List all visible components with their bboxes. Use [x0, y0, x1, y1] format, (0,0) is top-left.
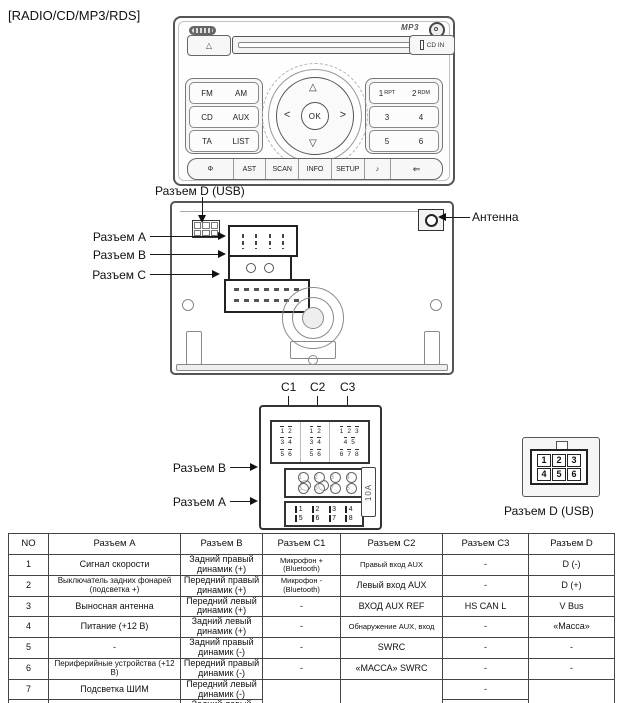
table-cell: -: [263, 638, 341, 659]
connector-d-pins: 123456: [530, 449, 588, 485]
table-row: 3Выносная антеннаПередний левый динамик …: [9, 596, 615, 617]
face-button: 6: [404, 137, 438, 146]
motor-circle: [302, 307, 324, 329]
table-cell: Микрофон + (Bluetooth): [263, 555, 341, 576]
arrowhead: [438, 213, 446, 221]
pin-number: 6: [567, 468, 581, 481]
brand-logo-icon: [189, 26, 216, 35]
face-bottom-button: INFO: [299, 159, 332, 179]
pin-slot-icon: [329, 506, 331, 513]
pin-number-row: 5678: [286, 485, 362, 492]
pin-number-row: 456: [537, 468, 581, 481]
table-cell: Правый вход AUX: [341, 555, 443, 576]
pin-slot-icon: [312, 515, 314, 522]
pin-number: 4: [346, 474, 350, 481]
arrowhead: [250, 463, 258, 471]
pin-slot-icon: [314, 472, 325, 483]
table-cell: Сигнал скорости: [49, 555, 181, 576]
pinout-block-drawing: 123456 123456 12345678 12345678 12345678…: [259, 405, 382, 530]
arrowhead: [218, 232, 226, 240]
table-cell: Задний правый динамик (+): [181, 555, 263, 576]
table-cell: -: [263, 617, 341, 638]
table-cell: HS CAN L: [443, 596, 529, 617]
table-cell: Подсветка ШИМ: [49, 679, 181, 700]
c1-pin-group: 123456: [272, 422, 300, 462]
face-button-suffix: RPT: [384, 90, 395, 96]
pin-number: 8: [346, 485, 350, 492]
arrowhead: [218, 250, 226, 258]
label-connector-c: Разъем C: [88, 268, 146, 282]
pin-slot-icon: [345, 515, 347, 522]
pin-number: 5: [295, 515, 302, 522]
pin-number: 2: [314, 474, 318, 481]
pin-slot-icon: [298, 472, 309, 483]
pin-number: 7: [330, 485, 334, 492]
pin-number: 5: [310, 449, 314, 458]
table-cell: -: [529, 638, 615, 659]
face-button: 1RPT: [370, 89, 404, 98]
table-cell: Передний левый динамик (-): [181, 679, 263, 700]
pin-slot-icon: [346, 483, 357, 494]
base-strip: [176, 364, 448, 371]
pin-number: 2: [347, 426, 351, 435]
leader-line: [446, 217, 470, 218]
c2-pin-group: 123456: [300, 422, 329, 462]
pin-number: 1: [295, 506, 302, 513]
table-row: 2Выключатель задних фонарей (подсветка +…: [9, 575, 615, 596]
face-button-row: 56: [369, 130, 439, 152]
pin-number: 8: [355, 449, 359, 458]
pin-number-row: 12: [280, 426, 291, 435]
pin-number: 2: [317, 426, 321, 435]
page-title: [RADIO/CD/MP3/RDS]: [8, 8, 140, 23]
table-row: 7Подсветка ШИМПередний левый динамик (-)…: [9, 679, 615, 700]
pin-number: 3: [355, 426, 359, 435]
pin-number: 5: [280, 449, 284, 458]
connector-b-drawing: [228, 255, 292, 281]
table-row: 5-Задний правый динамик (-)-SWRC--: [9, 638, 615, 659]
arrowhead: [212, 270, 220, 278]
table-cell: Передний левый динамик (+): [181, 596, 263, 617]
pin-number: 2: [288, 426, 292, 435]
table-cell: «МАССА» SWRC: [341, 658, 443, 679]
arrowhead: [198, 215, 206, 223]
pin-number: 1: [280, 426, 284, 435]
pin-number-row: 45: [344, 437, 355, 446]
pin-number: 5: [351, 437, 355, 446]
pin-number: 4: [344, 437, 348, 446]
leader-line: [150, 274, 216, 275]
column-header: Разъем D: [529, 534, 615, 555]
arrowhead: [250, 497, 258, 505]
label-connector-d-usb: Разъем D (USB): [155, 184, 245, 198]
pin-number: 3: [329, 506, 336, 513]
table-cell: 4: [9, 617, 49, 638]
face-bottom-button: ♪: [365, 159, 391, 179]
pin-number: 6: [340, 449, 344, 458]
face-button: LIST: [224, 137, 258, 146]
mp3-logo: MP3: [401, 23, 419, 32]
face-bottom-button: ⇐: [391, 159, 442, 179]
pin-number-row: 678: [340, 449, 359, 458]
pin-number: 6: [288, 449, 292, 458]
pin-table-header: NOРазъем AРазъем BРазъем C1Разъем C2Разъ…: [9, 534, 615, 555]
table-cell: D (+): [529, 575, 615, 596]
leader-line: [202, 197, 203, 217]
cd-in-label: CD IN: [427, 42, 445, 49]
face-button-row: TALIST: [189, 130, 259, 152]
table-cell: Передний правый динамик (-): [181, 658, 263, 679]
column-header: Разъем B: [181, 534, 263, 555]
pin-number: 1: [298, 474, 302, 481]
pin-number: 4: [317, 437, 321, 446]
face-button: 4: [404, 113, 438, 122]
table-cell: Микрофон - (Bluetooth): [263, 575, 341, 596]
column-header: Разъем C3: [443, 534, 529, 555]
dpad-up-icon: △: [309, 83, 317, 93]
face-button-row: 1RPT2RDM: [369, 82, 439, 104]
table-cell: Передний правый динамик (+): [181, 575, 263, 596]
pin-number-row: 34: [310, 437, 321, 446]
pin-number: 4: [345, 506, 352, 513]
pin-number: 3: [310, 437, 314, 446]
pin-number: 1: [310, 426, 314, 435]
pin-number: 5: [552, 468, 566, 481]
pin-number: 1: [537, 454, 551, 467]
pin-number: 1: [340, 426, 344, 435]
table-row: 4Питание (+12 В)Задний левый динамик (+)…: [9, 617, 615, 638]
pin-number: 8: [345, 515, 352, 522]
column-header: Разъем C1: [263, 534, 341, 555]
table-cell: 7: [9, 679, 49, 700]
table-cell: V Bus: [529, 596, 615, 617]
connector-c-pinout: 123456 123456 12345678: [270, 420, 370, 464]
table-cell: Питание (+12 В): [49, 617, 181, 638]
leader-line: [150, 236, 222, 237]
column-header: Разъем A: [49, 534, 181, 555]
column-header: Разъем C2: [341, 534, 443, 555]
leader-line: [230, 467, 252, 468]
dpad-right-icon: >: [340, 110, 346, 121]
table-header-row: NOРазъем AРазъем BРазъем C1Разъем C2Разъ…: [9, 534, 615, 555]
label-pinout-b: Разъем B: [166, 461, 226, 475]
cd-in-button: CD IN: [409, 35, 455, 55]
face-button-row: FMAM: [189, 82, 259, 104]
table-cell: -: [443, 638, 529, 659]
pin-number: 4: [288, 437, 292, 446]
face-button: TA: [190, 137, 224, 146]
c3-pin-group: 12345678: [329, 422, 368, 462]
connector-a-pinout: 12345678: [284, 501, 364, 527]
table-cell: -: [443, 658, 529, 679]
pin-slot-icon: [295, 515, 297, 522]
pin-slot-icon: [329, 515, 331, 522]
eject-button: △: [187, 35, 231, 56]
pin-slot-icon: [312, 506, 314, 513]
pin-number-row: 56: [310, 449, 321, 458]
connector-d-usb-drawing: 123456: [522, 437, 600, 497]
face-button: AUX: [224, 113, 258, 122]
table-cell: Задний левый динамик (+): [181, 617, 263, 638]
face-button: 2RDM: [404, 89, 438, 98]
table-cell: -: [49, 638, 181, 659]
pin-number-row: 1234: [286, 506, 362, 513]
pin-slot-icon: [330, 472, 341, 483]
pin-number-row: 1234: [286, 474, 362, 481]
table-cell: «Масса»: [529, 617, 615, 638]
table-cell: Обнаружение AUX, вход: [341, 617, 443, 638]
pin-number-row: 34: [280, 437, 291, 446]
table-cell: -: [529, 658, 615, 679]
dpad-left-icon: <: [284, 110, 290, 121]
screw-icon: [430, 299, 442, 311]
column-header: NO: [9, 534, 49, 555]
dpad-down-icon: ▽: [309, 139, 317, 149]
table-cell: 1: [9, 555, 49, 576]
table-cell: Периферийные устройства (+12 В): [49, 658, 181, 679]
table-cell: [341, 679, 443, 703]
pin-slot-icon: [330, 483, 341, 494]
mount-bracket: [186, 331, 202, 365]
table-cell: SWRC: [341, 638, 443, 659]
face-button: 5: [370, 137, 404, 146]
pin-slot-icon: [295, 506, 297, 513]
pin-table-body: 1Сигнал скоростиЗадний правый динамик (+…: [9, 555, 615, 703]
pin-number: 6: [317, 449, 321, 458]
face-bottom-button: SETUP: [332, 159, 365, 179]
label-antenna: Антенна: [472, 210, 519, 224]
pin-slot-icon: [298, 483, 309, 494]
rear-top-edge: [180, 211, 444, 212]
face-button-row: 34: [369, 106, 439, 128]
leader-line: [150, 254, 222, 255]
label-c3: C3: [340, 380, 355, 394]
cd-in-bar-icon: [420, 40, 424, 50]
pin-number: 5: [298, 485, 302, 492]
fuse-label: 10A: [364, 483, 373, 500]
face-bottom-button: Φ: [188, 159, 234, 179]
pin-number: 7: [329, 515, 336, 522]
table-cell: -: [443, 555, 529, 576]
table-cell: Выключатель задних фонарей (подсветка +): [49, 575, 181, 596]
radio-faceplate-drawing: △ MP3 CD IN FMAMCDAUXTALIST 1RPT2RDM3456…: [173, 16, 455, 186]
face-button: AM: [224, 89, 258, 98]
pin-slot-icon: [345, 506, 347, 513]
pin-number: 4: [537, 468, 551, 481]
pin-number: 7: [347, 449, 351, 458]
ok-button: OK: [301, 102, 329, 130]
pin-slot-icon: [346, 472, 357, 483]
cd-slot: [232, 36, 430, 54]
fuse-slot: 10A: [361, 467, 376, 517]
right-button-group: 1RPT2RDM3456: [365, 78, 443, 154]
table-cell: [529, 679, 615, 703]
screw-icon: [182, 299, 194, 311]
table-cell: 3: [9, 596, 49, 617]
label-c1: C1: [281, 380, 296, 394]
label-pinout-a: Разъем A: [166, 495, 226, 509]
table-cell: Выносная антенна: [49, 596, 181, 617]
face-button: 3: [370, 113, 404, 122]
face-button-row: CDAUX: [189, 106, 259, 128]
pin-number: 6: [312, 515, 319, 522]
table-cell: D (-): [529, 555, 615, 576]
label-c2: C2: [310, 380, 325, 394]
connector-a-drawing: [228, 225, 298, 257]
table-cell: 2: [9, 575, 49, 596]
face-button-suffix: RDM: [417, 90, 430, 96]
pin-number: 2: [552, 454, 566, 467]
pin-number: 6: [314, 485, 318, 492]
pin-number-row: 123: [537, 454, 581, 467]
pin-number: 2: [312, 506, 319, 513]
table-cell: [263, 679, 341, 703]
pin-table: NOРазъем AРазъем BРазъем C1Разъем C2Разъ…: [8, 533, 615, 703]
pin-number: 3: [567, 454, 581, 467]
label-connector-d-usb-pinout: Разъем D (USB): [504, 504, 594, 518]
leader-line: [230, 501, 252, 502]
table-cell: ВХОД AUX REF: [341, 596, 443, 617]
table-cell: -: [443, 575, 529, 596]
left-button-group: FMAMCDAUXTALIST: [185, 78, 263, 154]
pin-number-row: 5678: [286, 515, 362, 522]
connector-b-pinout: 12345678: [284, 468, 364, 498]
table-row: 1Сигнал скоростиЗадний правый динамик (+…: [9, 555, 615, 576]
table-cell: 5: [9, 638, 49, 659]
pin-number: 3: [330, 474, 334, 481]
face-button: FM: [190, 89, 224, 98]
pin-slot-icon: [314, 483, 325, 494]
table-cell: -: [443, 679, 529, 700]
table-cell: -: [263, 596, 341, 617]
table-cell: -: [263, 658, 341, 679]
face-bottom-button: AST: [234, 159, 267, 179]
pin-number-row: 56: [280, 449, 291, 458]
label-connector-b: Разъем B: [88, 248, 146, 262]
table-cell: 6: [9, 658, 49, 679]
dpad: △ ▽ < > OK: [276, 77, 354, 155]
mount-bracket: [424, 331, 440, 365]
face-button: CD: [190, 113, 224, 122]
manual-page: [RADIO/CD/MP3/RDS] △ MP3 CD IN FMAMCDAUX…: [0, 0, 622, 703]
pin-number: 3: [280, 437, 284, 446]
face-bottom-button: SCAN: [266, 159, 299, 179]
table-cell: -: [443, 617, 529, 638]
bottom-button-bar: ΦASTSCANINFOSETUP♪⇐: [187, 158, 443, 180]
label-connector-a: Разъем A: [88, 230, 146, 244]
table-cell: Левый вход AUX: [341, 575, 443, 596]
pin-number-row: 12: [310, 426, 321, 435]
rear-view-drawing: [170, 201, 454, 375]
table-row: 6Периферийные устройства (+12 В)Передний…: [9, 658, 615, 679]
pin-number-row: 123: [340, 426, 359, 435]
table-cell: Задний правый динамик (-): [181, 638, 263, 659]
